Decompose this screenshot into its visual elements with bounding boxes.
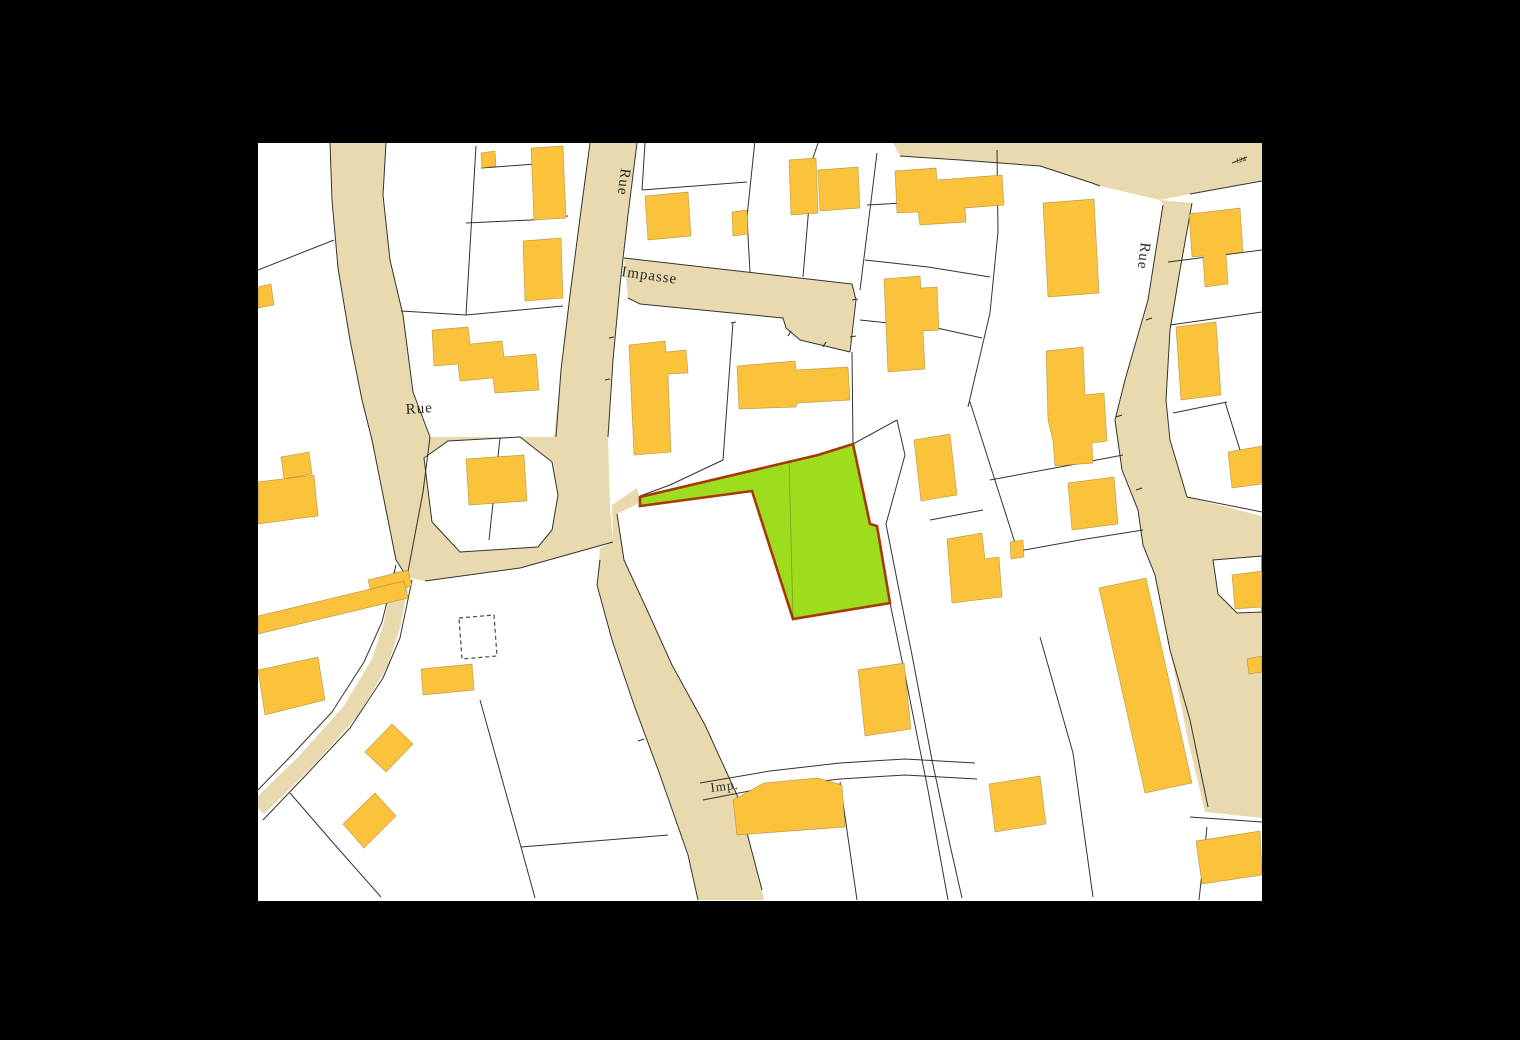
building-footprint — [466, 455, 527, 505]
road-name-rue-left: Rue — [405, 400, 433, 418]
building-footprint — [645, 192, 691, 240]
building-footprint — [481, 151, 496, 168]
building-footprint — [258, 475, 318, 524]
building-footprint — [1232, 571, 1262, 609]
building-footprint — [914, 434, 957, 501]
building-footprint — [1043, 199, 1099, 297]
building-footprint — [1068, 477, 1118, 530]
building-footprint — [523, 238, 563, 301]
building-footprint — [789, 158, 818, 215]
road-name-rue-right: Rue — [1134, 242, 1153, 271]
building-footprint — [818, 167, 860, 211]
building-footprint — [1176, 322, 1221, 400]
building-footprint — [281, 452, 312, 479]
building-footprint — [732, 210, 748, 236]
building-footprint — [1010, 540, 1024, 559]
road-name-rue-top: Rue — [614, 168, 633, 197]
map-canvas[interactable]: RueImpasseRueRueImp.124 — [0, 0, 1520, 1040]
cadastral-map-stage: RueImpasseRueRueImp.124 — [0, 0, 1520, 1040]
building-footprint — [989, 776, 1046, 832]
building-footprint — [1247, 656, 1262, 674]
building-footprint — [858, 663, 911, 736]
building-footprint — [1228, 446, 1262, 488]
building-footprint — [421, 664, 474, 695]
building-footprint — [258, 284, 274, 308]
building-footprint — [531, 146, 566, 220]
